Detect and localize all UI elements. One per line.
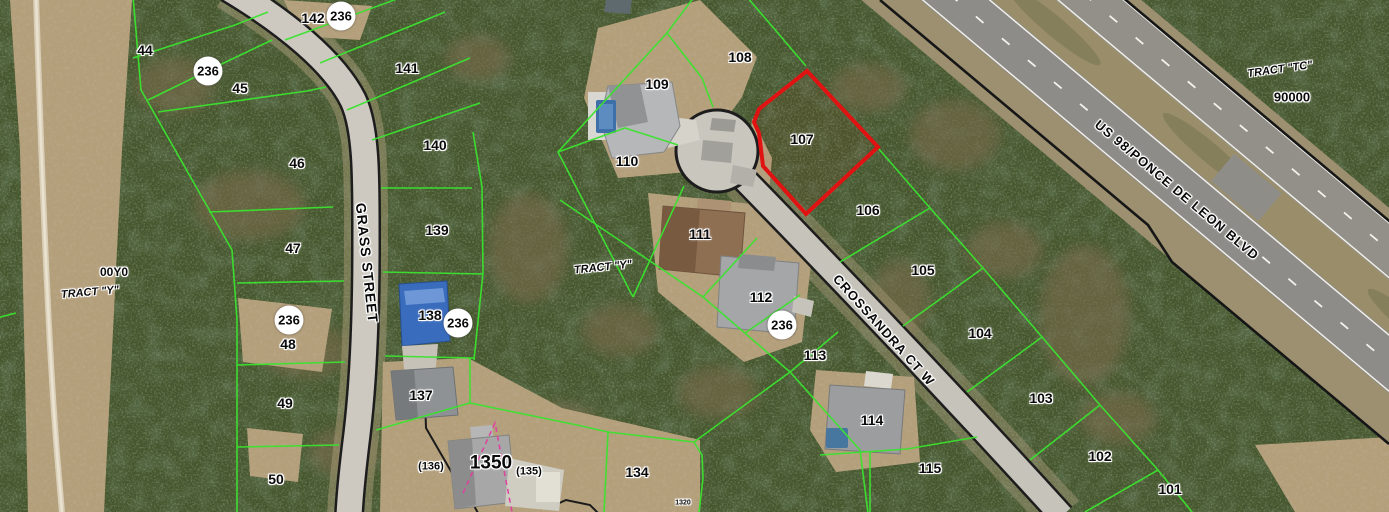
aerial-map-canvas xyxy=(0,0,1389,512)
swimming-pool xyxy=(826,428,848,448)
shed-roof xyxy=(604,0,632,14)
map-viewport[interactable]: 4423645464723648495014223614114013913823… xyxy=(0,0,1389,512)
driveway xyxy=(864,371,893,389)
